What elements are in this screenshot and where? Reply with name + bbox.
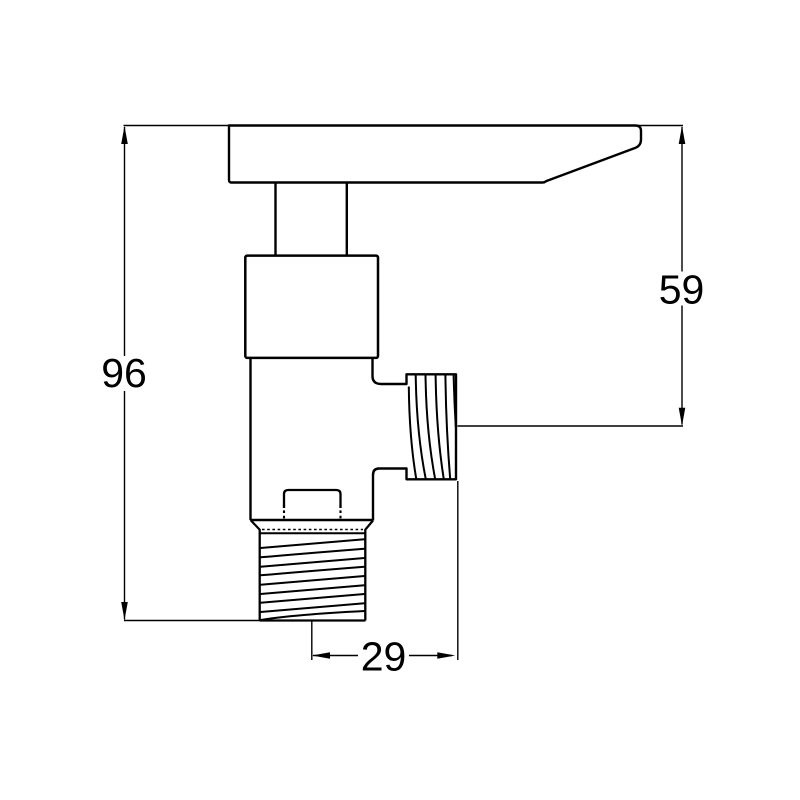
- svg-text:29: 29: [361, 633, 407, 679]
- svg-text:96: 96: [101, 350, 147, 396]
- svg-text:59: 59: [659, 267, 705, 313]
